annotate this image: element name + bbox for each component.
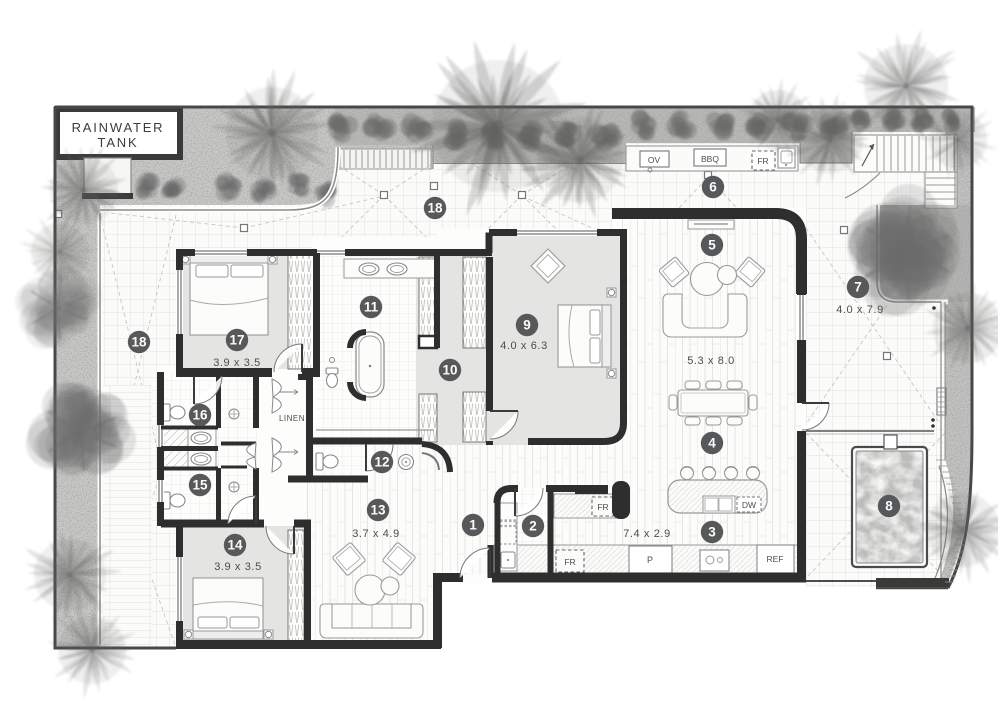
- svg-text:OV: OV: [648, 155, 661, 165]
- svg-text:FR: FR: [564, 557, 575, 567]
- svg-text:3.9 x 3.5: 3.9 x 3.5: [214, 561, 262, 573]
- svg-text:3.9 x 3.5: 3.9 x 3.5: [213, 357, 261, 369]
- svg-text:1: 1: [469, 518, 477, 533]
- svg-text:P: P: [647, 555, 653, 565]
- svg-text:FR: FR: [757, 156, 768, 166]
- svg-text:11: 11: [364, 300, 379, 315]
- svg-text:4: 4: [708, 436, 716, 451]
- svg-text:10: 10: [442, 363, 457, 378]
- svg-text:4.0 x 6.3: 4.0 x 6.3: [500, 340, 548, 352]
- svg-text:13: 13: [370, 503, 386, 518]
- svg-text:8: 8: [885, 499, 893, 514]
- svg-text:12: 12: [374, 455, 389, 470]
- svg-text:16: 16: [192, 408, 208, 423]
- svg-text:FR: FR: [597, 502, 608, 512]
- svg-text:15: 15: [192, 478, 208, 493]
- svg-text:14: 14: [227, 538, 243, 553]
- svg-text:DW: DW: [742, 500, 756, 510]
- svg-text:LINEN: LINEN: [279, 414, 305, 423]
- svg-text:REF: REF: [767, 554, 784, 564]
- svg-text:6: 6: [709, 180, 717, 195]
- svg-text:3.7 x 4.9: 3.7 x 4.9: [352, 528, 400, 540]
- svg-text:7.4 x 2.9: 7.4 x 2.9: [623, 528, 671, 540]
- svg-text:3: 3: [708, 525, 716, 540]
- svg-text:RAINWATER: RAINWATER: [72, 120, 165, 135]
- svg-text:18: 18: [131, 335, 147, 350]
- svg-text:5.3 x 8.0: 5.3 x 8.0: [687, 355, 735, 367]
- svg-text:4.0 x 7.9: 4.0 x 7.9: [836, 304, 884, 316]
- svg-text:18: 18: [427, 201, 443, 216]
- svg-text:9: 9: [523, 318, 531, 333]
- svg-text:5: 5: [708, 238, 716, 253]
- svg-text:2: 2: [529, 519, 537, 534]
- svg-text:7: 7: [854, 280, 862, 295]
- svg-text:BBQ: BBQ: [701, 154, 719, 164]
- svg-text:17: 17: [229, 333, 244, 348]
- svg-text:TANK: TANK: [98, 135, 139, 150]
